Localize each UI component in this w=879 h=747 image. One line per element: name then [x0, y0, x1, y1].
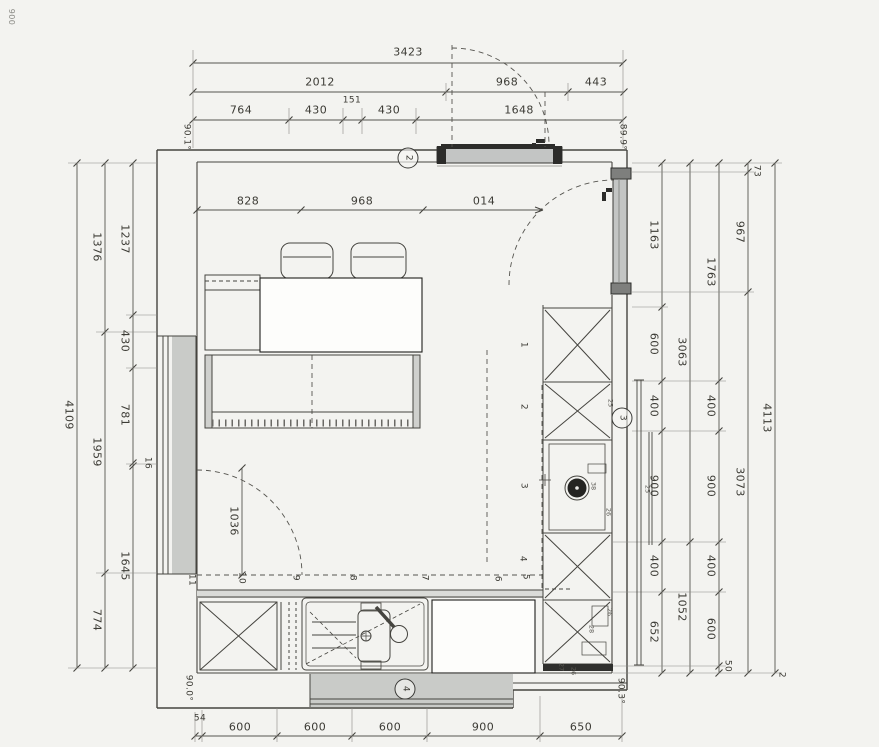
dim-left-total: 4109 [64, 400, 75, 430]
small-mark: 38 [590, 482, 597, 490]
unit-number: 1 [519, 342, 528, 348]
angle-bottom-left: 90.0° [184, 675, 193, 702]
dim-label: 900 [472, 722, 494, 733]
small-mark: 28 [588, 625, 595, 633]
dim-label: 600 [706, 618, 717, 640]
dim-label: 3073 [735, 467, 746, 497]
angle-top-right: 89.9° [618, 124, 627, 151]
unit-number: 8 [348, 575, 357, 581]
sink-unit [302, 598, 428, 670]
unit-number: 6 [493, 576, 502, 582]
top-door [437, 139, 562, 166]
chair [281, 243, 333, 279]
dim-label: 764 [230, 105, 252, 116]
dim-label: 2012 [305, 77, 335, 88]
dim-label: 600 [379, 722, 401, 733]
dim-label: 781 [120, 404, 131, 426]
unit-number: 7 [420, 575, 429, 581]
dim-label: 014 [473, 196, 495, 207]
dim-label: 3063 [677, 337, 688, 367]
dim-label: 16 [143, 457, 152, 469]
dim-label: 54 [194, 715, 206, 724]
right-door [602, 168, 631, 294]
dim-label: 1052 [677, 592, 688, 622]
marker-right-wall: 3 [618, 415, 627, 421]
unit-number: 2 [519, 404, 528, 410]
dim-label: 967 [735, 221, 746, 243]
small-mark: 25 [607, 399, 614, 407]
dim-label: 430 [305, 105, 327, 116]
bench [205, 355, 420, 428]
dim-label: 400 [706, 555, 717, 577]
dim-label: 1763 [706, 257, 717, 287]
unit-number: 3 [519, 483, 528, 489]
redaction-box [432, 600, 535, 673]
dim-label: 1648 [504, 105, 534, 116]
dim-label: 650 [570, 722, 592, 733]
marker-bottom-wall: 4 [401, 686, 410, 692]
left-wall-strip [172, 336, 196, 574]
dim-label: 652 [649, 621, 660, 643]
dim-label: 400 [706, 395, 717, 417]
small-mark: 26 [606, 608, 613, 616]
small-mark: 27 [558, 663, 565, 671]
scan-corner-note: 900 [7, 9, 15, 25]
angle-bottom-right: 90.3° [616, 678, 625, 705]
dim-top-total: 3423 [393, 47, 423, 58]
floor-plan-scan: 900 2 3423 2012 968 443 764 430 151 430 … [0, 0, 879, 747]
dim-label: 400 [649, 395, 660, 417]
dim-door-swing: 1036 [229, 506, 240, 536]
dim-label: 151 [343, 97, 361, 106]
small-mark: 26 [605, 508, 612, 516]
unit-number: 9 [291, 575, 300, 581]
dim-label: 73 [752, 165, 761, 177]
redaction-box [260, 278, 422, 352]
unit-number: 4 [518, 556, 527, 562]
dim-label: 443 [585, 77, 607, 88]
dim-label: 1376 [92, 232, 103, 262]
faucet [391, 626, 408, 643]
plan-linework [0, 0, 879, 747]
cabinet [205, 275, 260, 350]
dim-label: 1237 [120, 224, 131, 254]
dim-label: 600 [229, 722, 251, 733]
dim-label: 1645 [120, 551, 131, 581]
unit-number: 5 [521, 574, 530, 580]
dim-label: 430 [378, 105, 400, 116]
dim-label: 968 [351, 196, 373, 207]
dim-label: 828 [237, 196, 259, 207]
dim-label: 774 [92, 609, 103, 631]
dim-label: 430 [120, 330, 131, 352]
marker-top-wall: 2 [404, 155, 413, 161]
dim-label: 400 [649, 555, 660, 577]
dim-label: 1959 [92, 437, 103, 467]
dim-radiator: 25 [644, 485, 651, 493]
unit-number: 10 [237, 572, 246, 584]
scan-stray-mark: 2 [777, 672, 786, 678]
dim-label: 968 [496, 77, 518, 88]
dim-label: 1163 [649, 220, 660, 250]
dim-right-total: 4113 [762, 403, 773, 433]
dim-label: 600 [304, 722, 326, 733]
dim-label: 50 [723, 660, 732, 672]
dim-label: 900 [706, 475, 717, 497]
small-mark: 26 [570, 667, 577, 675]
angle-top-left: 90.1° [182, 124, 191, 151]
unit-number: 11 [187, 574, 196, 586]
dim-label: 600 [649, 333, 660, 355]
chair [351, 243, 406, 279]
